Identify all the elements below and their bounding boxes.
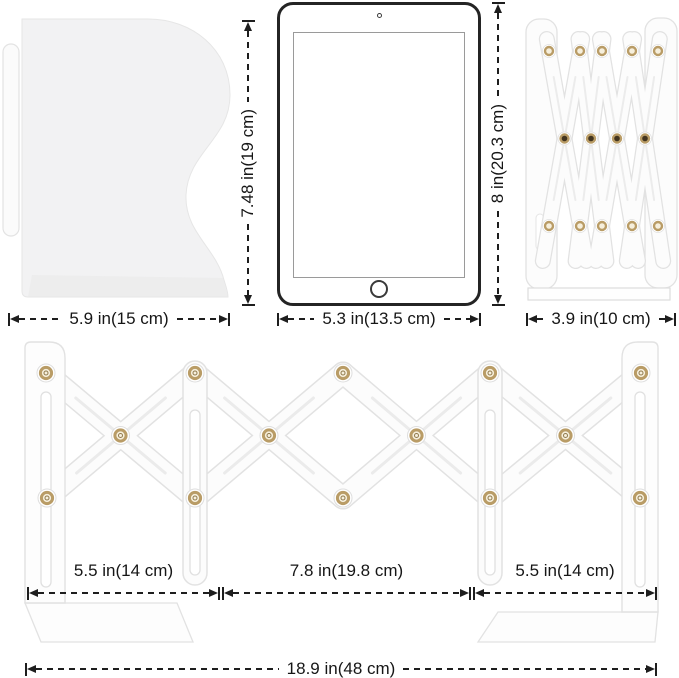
dim-label: 18.9 in(48 cm)	[279, 660, 404, 678]
dim-label: 5.5 in(14 cm)	[74, 561, 173, 581]
arrow-left-icon	[279, 315, 288, 323]
arrow-left-icon	[29, 589, 38, 597]
tablet-screen	[293, 32, 465, 278]
arrow-up-icon	[244, 22, 252, 31]
tablet-illustration	[277, 2, 481, 306]
product-dimension-diagram: 5.9 in(15 cm) 5.3 in(13.5 cm) 3.9 in(10 …	[0, 0, 679, 678]
bookend-back-edge	[3, 44, 19, 236]
dim-dash-line	[177, 318, 219, 320]
dim-end-tick	[655, 587, 657, 600]
dim-label: 8 in(20.3 cm)	[488, 97, 508, 210]
dim-dash-line	[36, 668, 279, 670]
dim-end-tick	[479, 313, 481, 326]
arrow-left-icon	[10, 315, 19, 323]
dim-end-tick	[242, 304, 255, 306]
dim-dash-line	[233, 592, 460, 594]
dim-dash-line	[19, 318, 61, 320]
folded-base-strip	[528, 288, 670, 300]
tablet-camera-dot	[377, 13, 382, 18]
expanded-bookend-illustration	[0, 330, 679, 660]
dim-end-tick	[469, 587, 471, 600]
arrow-right-icon	[219, 315, 228, 323]
dim-end-tick	[228, 313, 230, 326]
dim-label: 5.5 in(14 cm)	[515, 561, 614, 581]
dim-expanded-left-width: 5.5 in(14 cm)	[27, 584, 220, 602]
bookend-side-panel	[22, 19, 230, 297]
dim-expanded-total-width: 18.9 in(48 cm)	[25, 660, 657, 678]
dim-dash-line	[247, 224, 249, 295]
arrow-left-icon	[224, 589, 233, 597]
scissor-slats	[46, 373, 641, 498]
dim-dash-line	[247, 31, 249, 102]
arrow-left-icon	[475, 589, 484, 597]
dim-label: 7.8 in(19.8 cm)	[290, 561, 403, 581]
arrow-right-icon	[460, 589, 469, 597]
arrow-right-icon	[646, 589, 655, 597]
arrow-right-icon	[209, 589, 218, 597]
dim-end-tick	[492, 304, 505, 306]
dim-expanded-right-width: 5.5 in(14 cm)	[473, 584, 657, 602]
dim-label: 5.3 in(13.5 cm)	[314, 310, 443, 328]
dim-bookend-width: 5.9 in(15 cm)	[8, 310, 230, 328]
arrow-left-icon	[27, 665, 36, 673]
dim-label: 5.9 in(15 cm)	[61, 310, 176, 328]
dim-bookend-height: 7.48 in(19 cm)	[238, 20, 258, 306]
dim-dash-line	[288, 318, 314, 320]
dim-dash-line	[38, 592, 209, 594]
bookend-side-view-illustration	[2, 14, 238, 306]
dim-tablet-width: 5.3 in(13.5 cm)	[277, 310, 481, 328]
arrow-left-icon	[528, 315, 537, 323]
arrow-down-icon	[244, 295, 252, 304]
dim-end-tick	[674, 313, 676, 326]
arrow-up-icon	[494, 4, 502, 13]
arrow-right-icon	[470, 315, 479, 323]
dim-dash-line	[444, 318, 470, 320]
arrow-down-icon	[494, 295, 502, 304]
dim-dash-line	[484, 592, 646, 594]
dim-folded-width: 3.9 in(10 cm)	[526, 310, 676, 328]
dim-label: 7.48 in(19 cm)	[238, 102, 258, 225]
tablet-home-button	[370, 280, 388, 298]
dim-dash-line	[403, 668, 646, 670]
arrow-right-icon	[665, 315, 674, 323]
dim-dash-line	[497, 13, 499, 97]
dim-folded-height: 8 in(20.3 cm)	[488, 2, 508, 306]
dim-end-tick	[218, 587, 220, 600]
dim-dash-line	[497, 211, 499, 295]
dim-expanded-middle-width: 7.8 in(19.8 cm)	[222, 584, 471, 602]
arrow-right-icon	[646, 665, 655, 673]
base-plates	[25, 603, 658, 642]
folded-bookend-illustration	[524, 14, 679, 306]
dim-end-tick	[655, 663, 657, 676]
dim-label: 3.9 in(10 cm)	[543, 310, 658, 328]
